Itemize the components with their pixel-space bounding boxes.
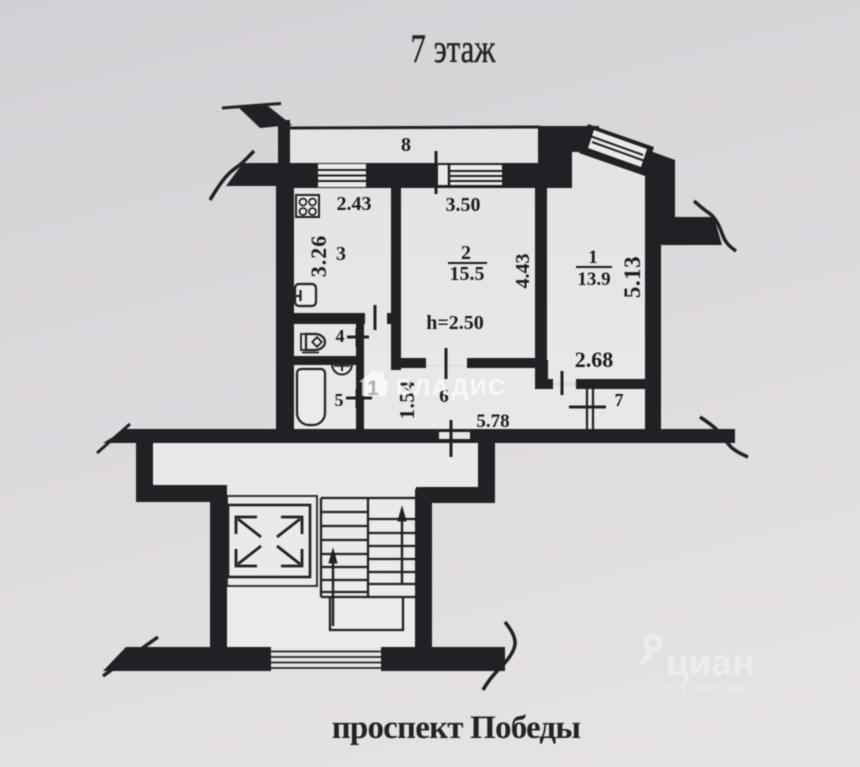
svg-text:3.26: 3.26 (306, 235, 331, 278)
svg-text:3.50: 3.50 (446, 194, 481, 216)
svg-text:2: 2 (461, 242, 471, 264)
svg-text:проспект Победы: проспект Победы (332, 710, 581, 746)
svg-text:ВЛАДИС: ВЛАДИС (396, 374, 507, 400)
svg-text:ID 12995768: ID 12995768 (662, 680, 742, 696)
svg-text:5: 5 (335, 390, 344, 410)
svg-text:h=2.50: h=2.50 (426, 312, 484, 334)
svg-text:7 этаж: 7 этаж (411, 26, 496, 71)
svg-text:5.78: 5.78 (476, 411, 509, 432)
svg-text:3: 3 (336, 243, 346, 265)
svg-text:5.13: 5.13 (620, 256, 645, 298)
svg-text:13.9: 13.9 (577, 269, 610, 290)
svg-text:циан: циан (666, 642, 754, 683)
svg-text:4: 4 (336, 326, 345, 346)
svg-text:2.43: 2.43 (337, 193, 372, 215)
svg-text:15.5: 15.5 (450, 263, 485, 285)
svg-text:1: 1 (588, 247, 598, 268)
svg-text:7: 7 (615, 390, 624, 410)
svg-text:4.43: 4.43 (512, 254, 534, 289)
svg-text:1: 1 (367, 377, 379, 400)
svg-text:2.68: 2.68 (575, 347, 614, 372)
svg-text:8: 8 (401, 134, 411, 156)
